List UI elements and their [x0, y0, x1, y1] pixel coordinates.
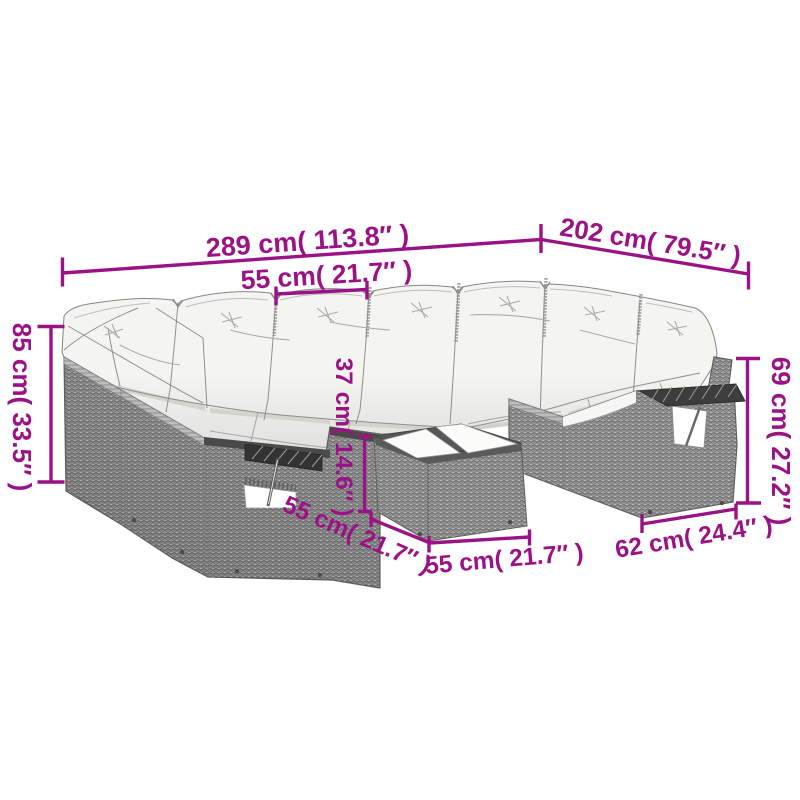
svg-text:69 cm( 27.2″ ): 69 cm( 27.2″ ) [766, 357, 796, 526]
svg-text:37 cm( 14.6″ ): 37 cm( 14.6″ ) [330, 358, 357, 517]
svg-text:85 cm( 33.5″ ): 85 cm( 33.5″ ) [7, 323, 37, 492]
